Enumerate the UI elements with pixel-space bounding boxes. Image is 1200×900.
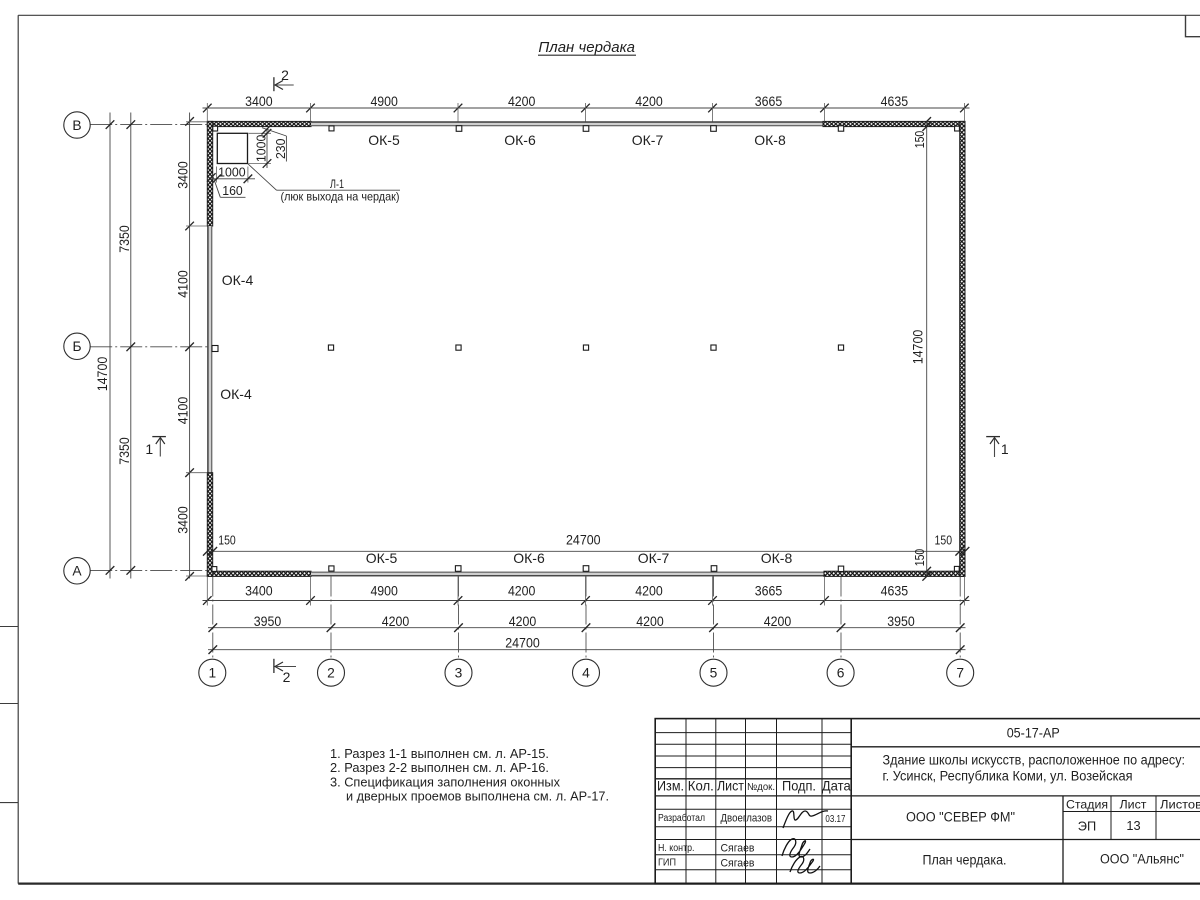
svg-text:ГИП: ГИП [658,857,676,868]
svg-text:Сягаев: Сягаев [721,857,755,869]
svg-text:Н. контр.: Н. контр. [658,843,695,854]
svg-text:4200: 4200 [636,614,664,629]
svg-text:4200: 4200 [764,614,792,629]
svg-text:ОК-4: ОК-4 [222,272,254,288]
svg-text:3665: 3665 [755,584,783,599]
svg-text:Сягаев: Сягаев [721,842,755,854]
svg-text:4635: 4635 [881,584,909,599]
svg-text:Л-1: Л-1 [330,177,344,191]
svg-text:3: 3 [455,666,463,681]
svg-text:150: 150 [912,131,927,149]
svg-text:5: 5 [710,666,718,681]
svg-text:4200: 4200 [508,584,536,599]
svg-text:Дата: Дата [822,779,851,794]
svg-text:4200: 4200 [382,614,410,629]
svg-text:ОК-6: ОК-6 [513,550,545,566]
svg-text:4100: 4100 [176,397,191,425]
svg-text:3400: 3400 [245,584,273,599]
svg-text:и дверных проемов выполнена см: и дверных проемов выполнена см. л. АР-17… [346,789,609,804]
svg-text:Здание школы искусств, располо: Здание школы искусств, расположенное по … [883,752,1186,767]
svg-text:3400: 3400 [176,161,191,189]
svg-text:Разработал: Разработал [658,812,705,824]
svg-text:ОК-7: ОК-7 [632,132,664,148]
svg-text:ОК-5: ОК-5 [366,550,398,566]
svg-text:13: 13 [1126,818,1140,833]
svg-text:ЭП: ЭП [1078,819,1096,834]
svg-text:(люк выхода на чердак): (люк выхода на чердак) [281,191,400,204]
svg-text:150: 150 [935,533,953,548]
svg-text:1000: 1000 [253,135,268,163]
svg-text:Лист: Лист [717,779,745,794]
svg-text:6: 6 [837,666,845,681]
svg-text:ОК-4: ОК-4 [220,386,252,402]
svg-text:3400: 3400 [176,506,191,534]
svg-text:05-17-АР: 05-17-АР [1007,726,1060,741]
svg-text:1: 1 [145,441,153,457]
svg-text:3. Спецификация заполнения око: 3. Спецификация заполнения оконных [330,774,561,789]
svg-text:Двоеглазов: Двоеглазов [721,813,773,825]
svg-text:4200: 4200 [509,614,537,629]
svg-text:Стадия: Стадия [1066,797,1108,811]
svg-text:Подп.: Подп. [782,779,816,794]
svg-text:14700: 14700 [95,357,110,392]
svg-text:3665: 3665 [755,94,783,109]
svg-text:4200: 4200 [508,94,536,109]
svg-text:150: 150 [218,533,236,548]
svg-text:№док.: №док. [747,782,775,793]
svg-text:ОК-5: ОК-5 [368,132,400,148]
svg-text:4900: 4900 [370,94,398,109]
svg-text:2: 2 [283,669,291,685]
svg-text:1: 1 [1001,441,1009,457]
svg-text:ОК-6: ОК-6 [504,132,536,148]
svg-text:План чердака: План чердака [538,39,635,56]
svg-text:24700: 24700 [566,533,601,548]
svg-text:ООО "Альянс": ООО "Альянс" [1100,851,1184,866]
svg-text:3400: 3400 [245,94,273,109]
svg-text:03.17: 03.17 [825,814,845,825]
svg-text:Б: Б [72,339,81,354]
svg-text:Кол.: Кол. [688,779,714,794]
svg-text:7350: 7350 [117,437,132,465]
svg-text:4200: 4200 [635,584,663,599]
svg-text:4200: 4200 [635,94,663,109]
svg-text:230: 230 [273,139,288,160]
svg-text:ОК-8: ОК-8 [754,132,786,148]
svg-text:В: В [72,118,81,133]
svg-text:3950: 3950 [254,614,282,629]
svg-text:4: 4 [582,666,590,681]
svg-text:ОК-7: ОК-7 [638,550,670,566]
svg-text:1: 1 [208,666,216,681]
svg-text:24700: 24700 [505,635,540,650]
svg-text:160: 160 [222,183,243,198]
svg-text:7: 7 [956,666,964,681]
svg-text:2: 2 [327,666,335,681]
svg-text:2. Разрез 2-2 выполнен см. л.: 2. Разрез 2-2 выполнен см. л. АР-16. [330,760,549,775]
svg-text:ОК-8: ОК-8 [761,550,793,566]
svg-text:г. Усинск, Республика Коми, ул: г. Усинск, Республика Коми, ул. Возейска… [883,768,1133,783]
svg-text:Листов: Листов [1160,797,1200,811]
svg-text:4635: 4635 [881,94,909,109]
svg-text:1000: 1000 [218,164,246,179]
svg-text:Изм.: Изм. [657,779,684,794]
svg-text:А: А [72,564,82,579]
svg-text:150: 150 [912,549,927,567]
svg-text:2: 2 [281,67,289,83]
svg-text:ООО "СЕВЕР ФМ": ООО "СЕВЕР ФМ" [906,810,1015,825]
svg-text:3950: 3950 [887,614,915,629]
svg-text:4100: 4100 [176,270,191,298]
svg-text:7350: 7350 [117,225,132,253]
svg-text:Лист: Лист [1120,797,1147,811]
svg-text:14700: 14700 [911,330,926,365]
svg-text:4900: 4900 [370,584,398,599]
svg-text:1. Разрез 1-1 выполнен см. л.: 1. Разрез 1-1 выполнен см. л. АР-15. [330,746,549,761]
svg-text:План чердака.: План чердака. [923,852,1007,867]
